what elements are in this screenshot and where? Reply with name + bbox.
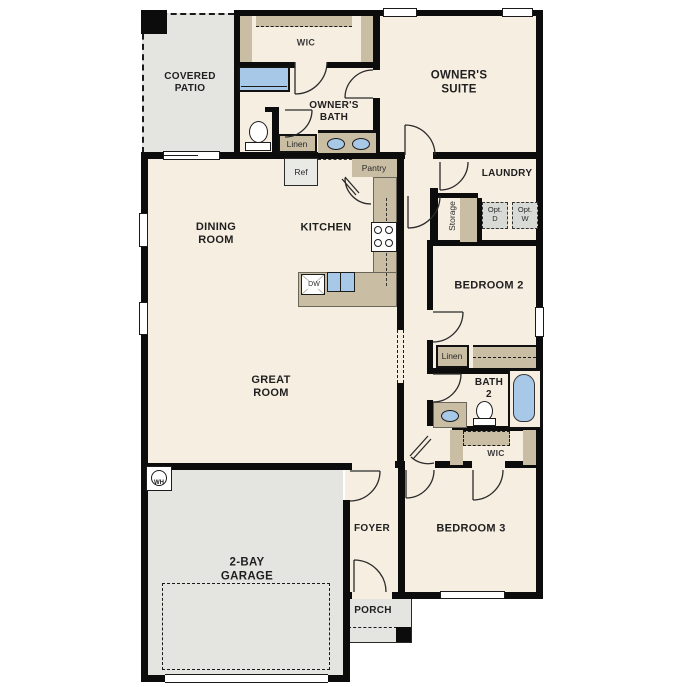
bedroom3-wic-door-opening <box>472 461 505 468</box>
bedroom2-closet <box>473 345 536 368</box>
burner <box>385 226 393 234</box>
owners-wic-label: WIC <box>297 38 315 49</box>
vanity-sink-left <box>327 138 345 150</box>
shower <box>238 66 290 92</box>
porch-post <box>396 627 411 642</box>
toilet-bath2-tank <box>473 418 496 426</box>
bedroom3-door-opening <box>405 461 435 468</box>
bedroom2-closet-dashes <box>473 357 536 358</box>
porch-dashed-edge <box>348 627 397 628</box>
bedroom-wic-shelf <box>463 431 510 446</box>
bedroom-wic-strip-right <box>523 430 536 465</box>
dishwasher-box: DW <box>301 274 325 295</box>
toilet-owners-tank <box>245 142 271 151</box>
floor-plan: DW WH COVERED PATIO WIC OWNER'S BATH <box>0 0 687 687</box>
window-bedroom2 <box>535 307 544 337</box>
owners-bath-label: OWNER'S BATH <box>309 100 358 124</box>
water-heater-label: WH <box>154 480 164 486</box>
wall-garage-top <box>141 463 352 470</box>
opt-washer-label: Opt. W <box>518 206 532 224</box>
window-great-room <box>139 302 148 335</box>
owners-vanity <box>318 130 376 153</box>
window-owners-suite-1 <box>383 8 417 17</box>
window-bedroom3 <box>440 591 505 599</box>
hall-linen-label: Linen <box>442 351 463 361</box>
kitchen-label: KITCHEN <box>301 222 352 235</box>
bedroom-wic-label: WIC <box>487 448 504 458</box>
owners-suite-door-opening <box>405 152 433 159</box>
owners-suite-label: OWNER'S SUITE <box>431 69 488 96</box>
bedroom3-label: BEDROOM 3 <box>436 523 505 536</box>
bedroom2-label: BEDROOM 2 <box>454 280 523 293</box>
sink-divider <box>340 273 341 291</box>
storage-label: Storage <box>447 201 457 231</box>
garage-label: 2-BAY GARAGE <box>221 556 273 583</box>
wall-center <box>397 152 404 468</box>
foyer-label: FOYER <box>354 523 390 535</box>
dishwasher-label: DW <box>307 281 321 289</box>
bath2-label: BATH 2 <box>475 377 503 401</box>
owners-wic-strip-left <box>240 16 252 62</box>
owners-wic-strip-right <box>361 16 373 62</box>
toilet-owners-bowl <box>249 121 268 143</box>
porch-label: PORCH <box>354 605 392 617</box>
wall-right <box>536 10 543 599</box>
kitchen-sink <box>327 272 355 292</box>
great-room-floor <box>148 158 397 463</box>
bath2-vanity <box>433 402 467 428</box>
wall-bedroom2-top <box>427 240 543 246</box>
covered-patio-label: COVERED PATIO <box>164 71 216 95</box>
refrigerator-label: Ref <box>294 167 307 177</box>
owners-wic-shelf <box>256 16 352 27</box>
patio-slider-door <box>163 151 220 160</box>
wall-bedroom2-left-a <box>427 246 433 310</box>
storage-shelf-strip <box>460 198 477 242</box>
window-owners-suite-2 <box>502 8 533 17</box>
porch-area <box>348 594 412 643</box>
slider-panel-line <box>164 155 198 156</box>
garage-parking-dashed <box>162 583 330 670</box>
bathtub <box>508 369 542 429</box>
bedroom-wic-strip-left <box>450 430 463 465</box>
owners-bath-door-opening <box>373 70 380 98</box>
front-door-opening <box>352 592 392 599</box>
wall-bedroom3-left <box>398 461 405 599</box>
burner <box>374 226 382 234</box>
bath2-sink <box>441 410 459 422</box>
burner <box>374 239 382 247</box>
pantry-label: Pantry <box>362 163 387 173</box>
opt-dryer-label: Opt. D <box>488 206 502 224</box>
owners-linen-label: Linen <box>287 139 308 149</box>
cased-opening-dashed <box>397 330 404 383</box>
upper-cabinet-dashes-h <box>318 159 352 160</box>
shower-curb-line <box>241 86 287 87</box>
bathtub-basin <box>513 374 535 422</box>
wic-door-opening <box>295 62 327 68</box>
wall-patio-corner <box>141 10 167 34</box>
laundry-label: LAUNDRY <box>482 168 533 180</box>
wall-garage-right-b <box>343 500 350 682</box>
water-heater-circle: WH <box>151 470 167 486</box>
window-dining <box>139 213 148 247</box>
dining-room-label: DINING ROOM <box>196 221 236 247</box>
stove <box>371 222 397 252</box>
wall-water-closet-stub <box>265 107 279 112</box>
wall-garage-right-a <box>343 463 350 470</box>
vanity-sink-right <box>352 138 370 150</box>
great-room-label: GREAT ROOM <box>251 374 290 400</box>
garage-door-opening <box>165 674 328 683</box>
water-heater-box: WH <box>146 466 172 491</box>
burner <box>385 239 393 247</box>
